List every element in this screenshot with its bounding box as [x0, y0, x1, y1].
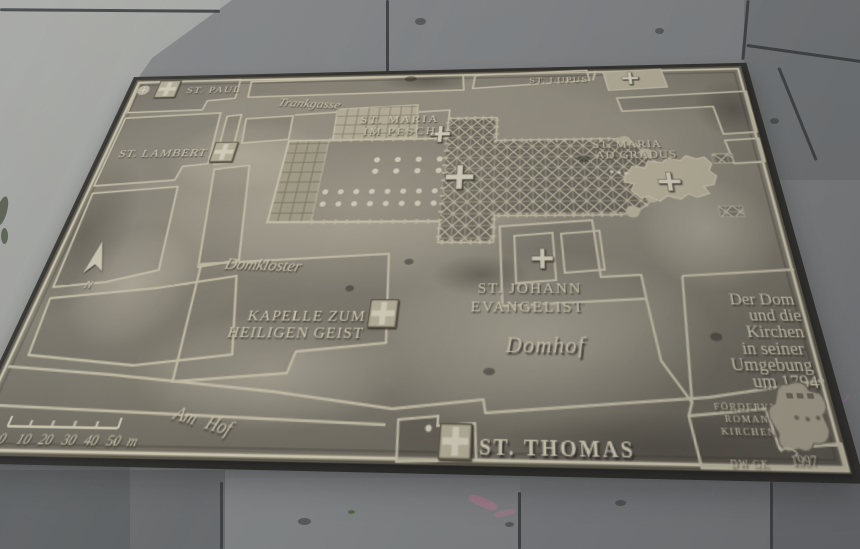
stairs-hatch — [712, 153, 735, 162]
gum-spot — [615, 500, 626, 506]
granite-tile — [770, 480, 860, 549]
pavement-joint — [518, 492, 521, 549]
gum-spot — [655, 28, 664, 34]
st-lambert-label: ST. LAMBERT — [116, 148, 209, 161]
pavement-joint — [220, 482, 223, 549]
kapelle-label: HEILIGEN GEIST — [226, 325, 365, 343]
map-canvas: N 0 10 20 30 40 50 m ST. PAUL Trankgasse… — [0, 66, 852, 474]
granite-tile — [225, 478, 520, 549]
gum-spot — [770, 118, 779, 124]
gum-spot — [415, 18, 426, 25]
weed — [1, 228, 8, 244]
gum-spot — [298, 518, 311, 525]
kapelle-label: KAPELLE ZUM — [246, 309, 367, 326]
green-chalk-speck — [348, 510, 355, 514]
stairs-hatch — [718, 206, 744, 216]
st-lupus-label: ST. LUPUS — [529, 75, 589, 85]
artist-initials: DW GK — [730, 459, 771, 472]
st-maria-im-pesch-label: ST. MARIA — [359, 114, 439, 126]
st-johann-label: ST. JOHANN — [477, 282, 582, 298]
gum-spot — [505, 522, 514, 527]
st-thomas-cross-icon — [438, 424, 471, 459]
pavement-joint — [386, 0, 389, 72]
st-lupus-church — [603, 69, 668, 90]
domkloster-label: Domkloster — [221, 254, 304, 275]
kapelle-cross-icon — [367, 300, 398, 327]
pavement-joint — [770, 482, 773, 549]
st-thomas-label: ST. THOMAS — [479, 434, 637, 464]
st-maria-ad-gradus-label: AD GRADUS — [595, 150, 678, 162]
st-johann-label: EVANGELIST — [470, 300, 585, 317]
granite-tile — [0, 470, 225, 549]
granite-tile — [520, 487, 770, 549]
domhof-label: Domhof — [504, 333, 588, 359]
st-paul-label: ST. PAUL — [185, 85, 243, 96]
st-maria-im-pesch-label: IM PESCH — [362, 126, 437, 138]
year-label: 1997 — [790, 453, 821, 469]
bronze-map-plaque: N 0 10 20 30 40 50 m ST. PAUL Trankgasse… — [0, 66, 852, 474]
